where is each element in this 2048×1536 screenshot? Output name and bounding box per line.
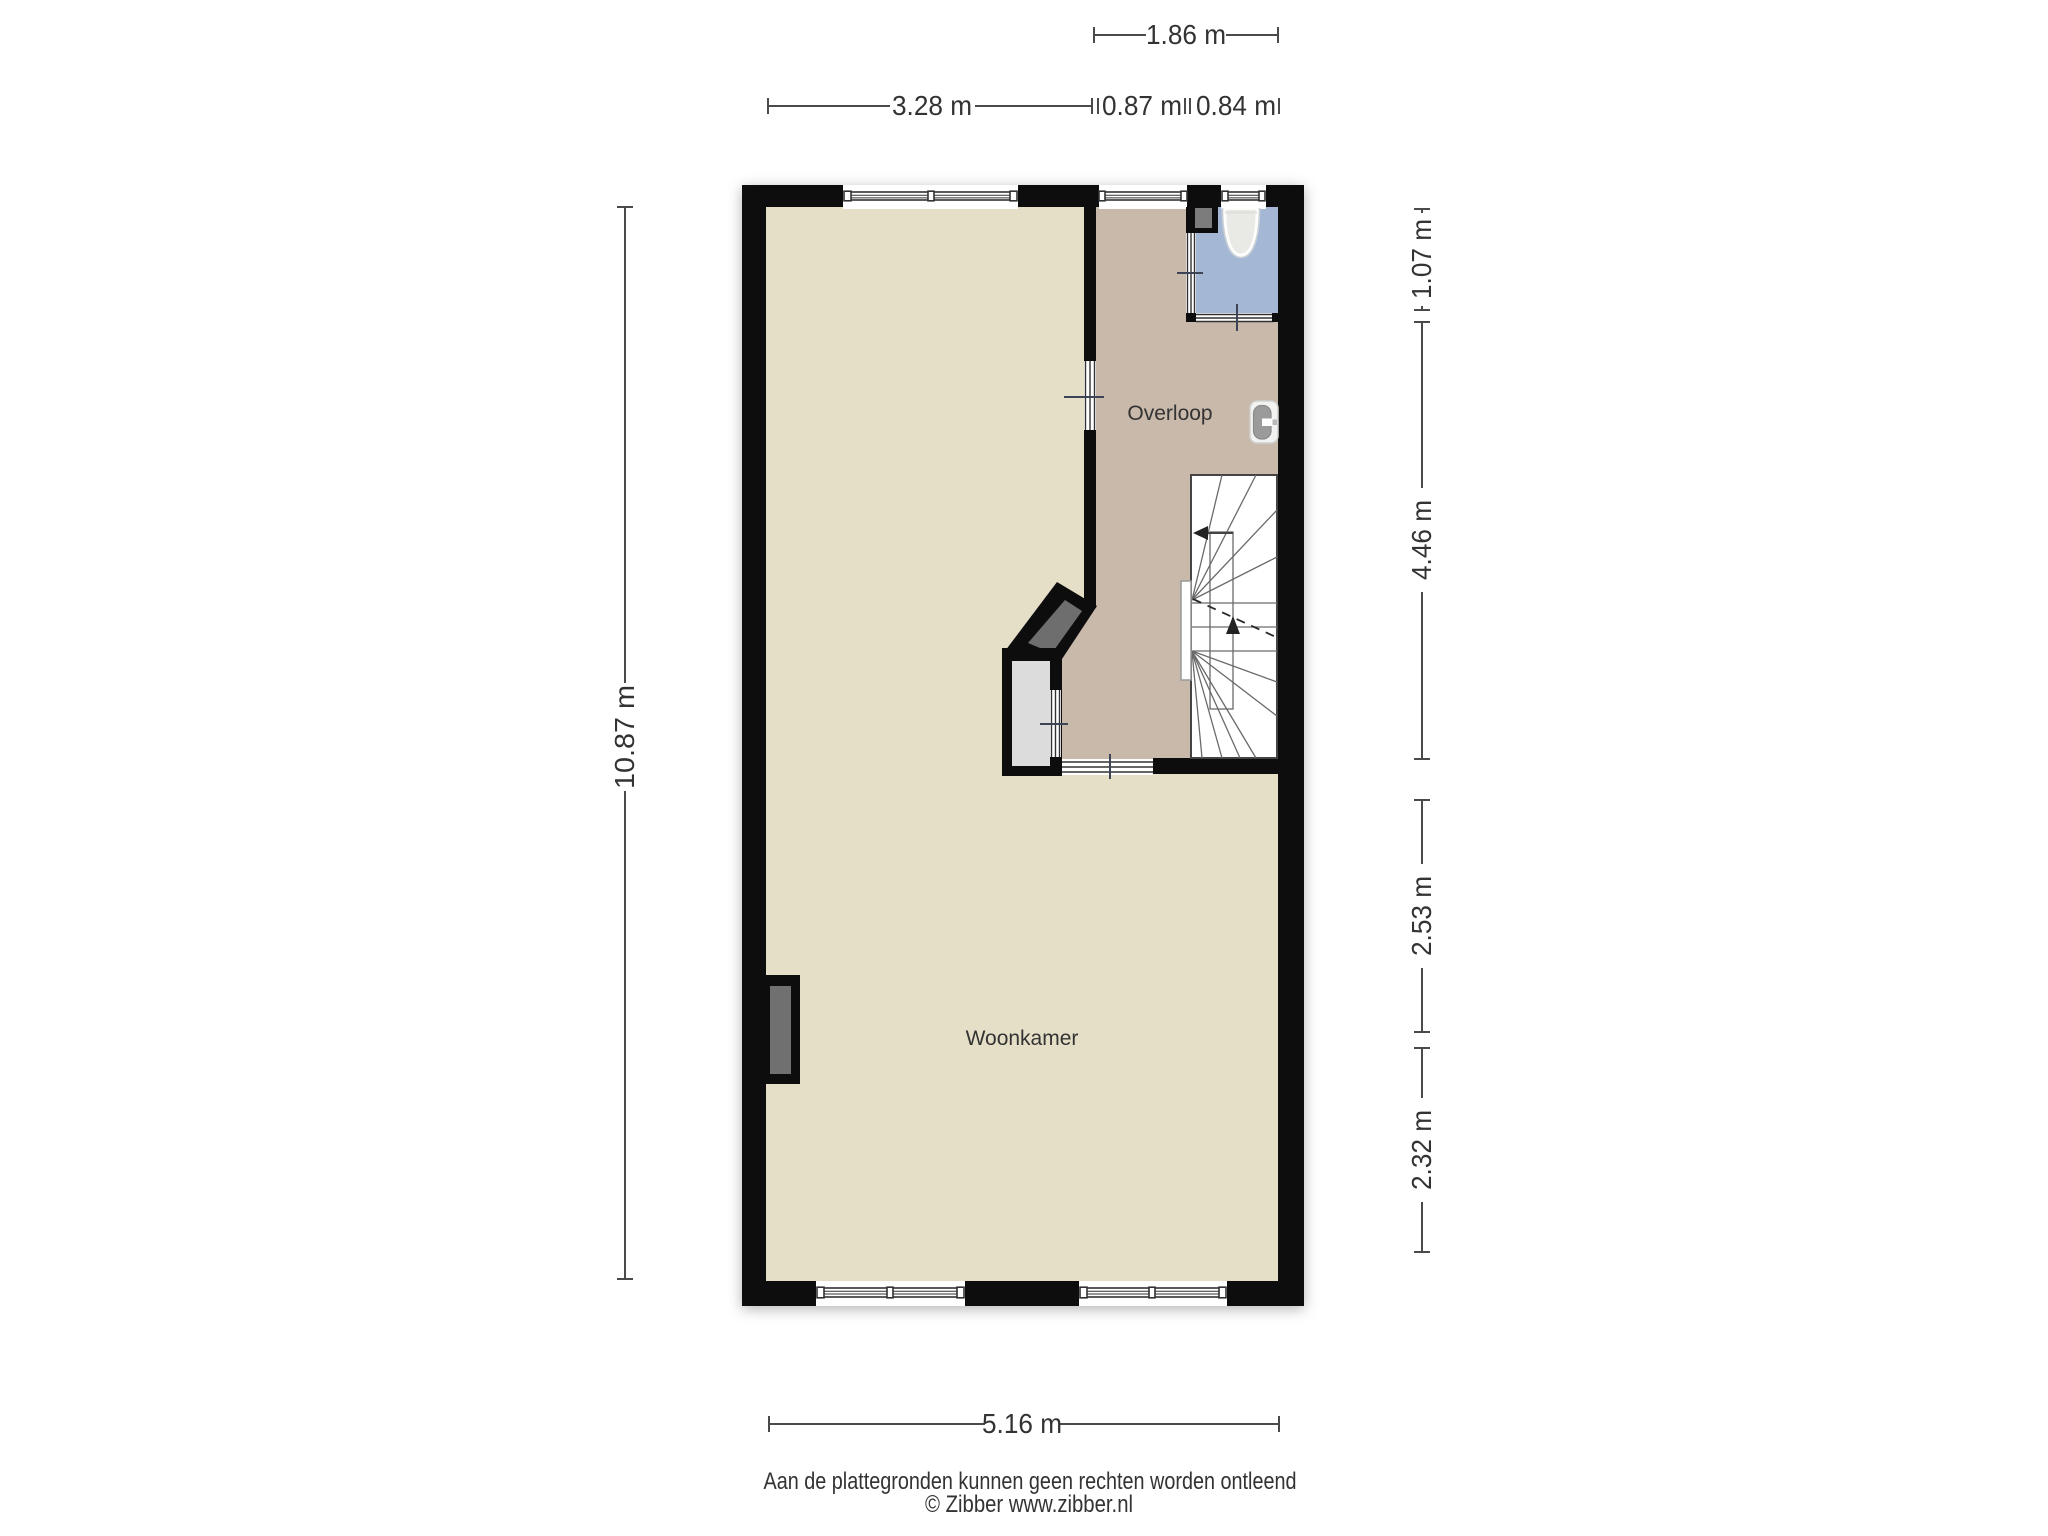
svg-text:1.86 m: 1.86 m (1146, 19, 1226, 50)
svg-text:0.84 m: 0.84 m (1196, 90, 1276, 121)
svg-text:© Zibber www.zibber.nl: © Zibber www.zibber.nl (925, 1491, 1133, 1518)
svg-text:0.87 m: 0.87 m (1102, 90, 1182, 121)
svg-text:Overloop: Overloop (1127, 402, 1212, 425)
svg-text:1.07 m: 1.07 m (1406, 219, 1437, 299)
svg-text:Woonkamer: Woonkamer (966, 1027, 1079, 1050)
svg-text:4.46 m: 4.46 m (1406, 500, 1437, 580)
svg-text:2.32 m: 2.32 m (1406, 1110, 1437, 1190)
svg-text:5.16 m: 5.16 m (982, 1408, 1062, 1439)
svg-text:2.53 m: 2.53 m (1406, 876, 1437, 956)
svg-text:3.28 m: 3.28 m (892, 90, 972, 121)
svg-text:10.87 m: 10.87 m (609, 685, 640, 789)
